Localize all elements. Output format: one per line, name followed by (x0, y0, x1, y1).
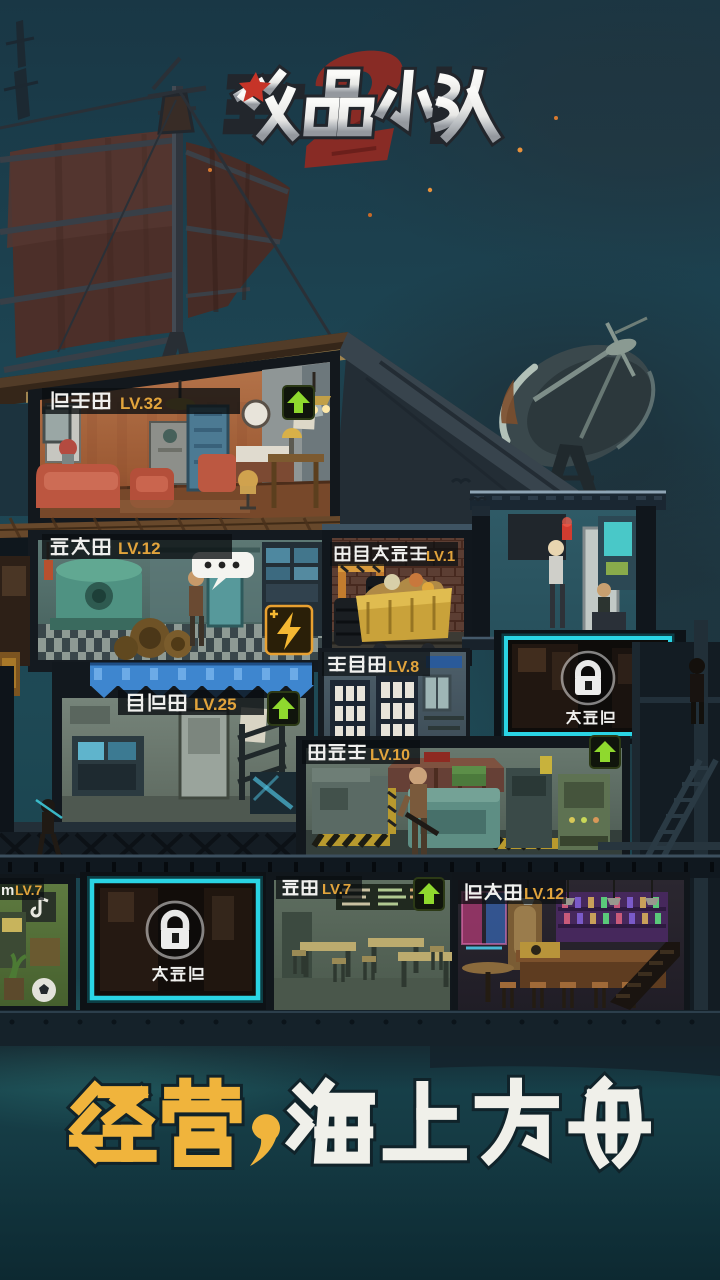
svg-text:LV.10: LV.10 (370, 747, 410, 764)
svg-text:m: m (1, 882, 14, 899)
svg-text:LV.7: LV.7 (322, 881, 351, 898)
svg-text:LV.25: LV.25 (194, 695, 237, 714)
svg-text:LV.7: LV.7 (15, 882, 42, 898)
svg-text:LV.8: LV.8 (388, 659, 419, 676)
svg-text:LV.1: LV.1 (426, 548, 455, 565)
svg-text:LV.12: LV.12 (118, 539, 161, 558)
svg-text:LV.12: LV.12 (524, 886, 564, 903)
svg-text:LV.32: LV.32 (120, 394, 163, 413)
